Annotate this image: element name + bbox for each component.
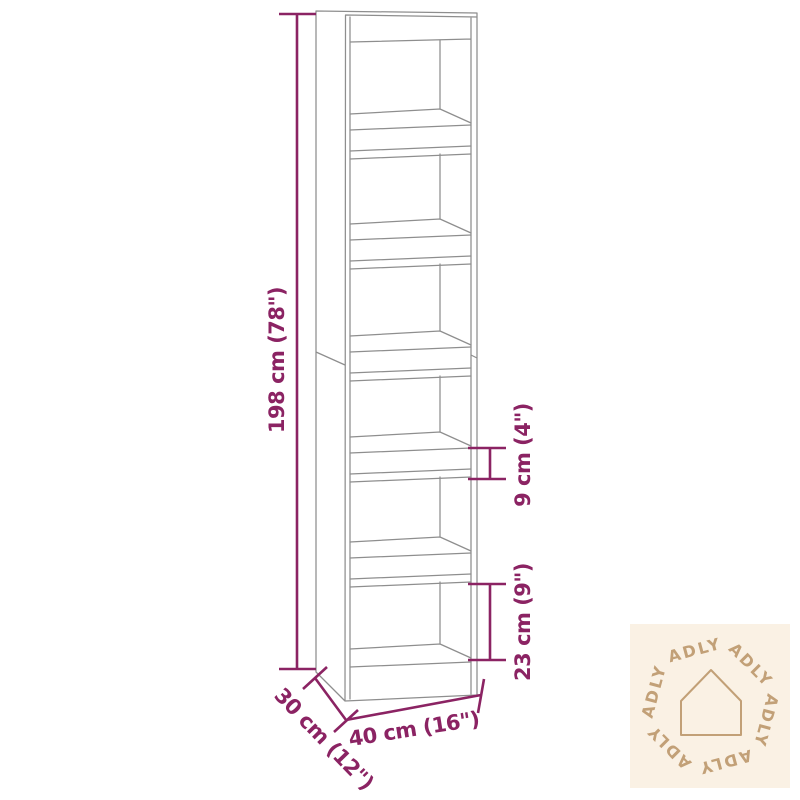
watermark-brand-text: ADLY — [638, 662, 671, 720]
watermark-brand-text: ADLY — [666, 634, 724, 667]
shelf-dimension-label: 9 cm (4") — [511, 403, 535, 507]
shelf-dimension-bracket — [468, 448, 506, 479]
bookcase-structure — [316, 11, 477, 701]
shelf-5 — [350, 537, 471, 587]
house-outline-icon — [678, 666, 744, 738]
watermark-brand-text: ADLY — [750, 692, 783, 750]
shelf-3 — [350, 331, 471, 381]
height-dimension-label: 198 cm (78") — [265, 287, 289, 433]
dimension-lines — [279, 14, 506, 732]
bottom-compartment-dimension-label: 23 cm (9") — [511, 563, 535, 681]
product-dimension-diagram: 198 cm (78") 9 cm (4") 23 cm (9") 40 cm … — [0, 0, 800, 800]
dimension-labels: 198 cm (78") 9 cm (4") 23 cm (9") 40 cm … — [265, 287, 535, 795]
bottom-panel — [350, 644, 471, 667]
width-dimension-label: 40 cm (16") — [347, 707, 481, 751]
shelf-2 — [350, 219, 471, 269]
shelf-1 — [350, 109, 471, 159]
shelf-4 — [350, 432, 471, 482]
watermark-brand-text: ADLY — [696, 746, 754, 779]
bottom-compartment-dimension-bracket — [468, 584, 506, 660]
brand-watermark: ADLY ADLY ADLY ADLY ADLY ADLY — [630, 624, 790, 788]
